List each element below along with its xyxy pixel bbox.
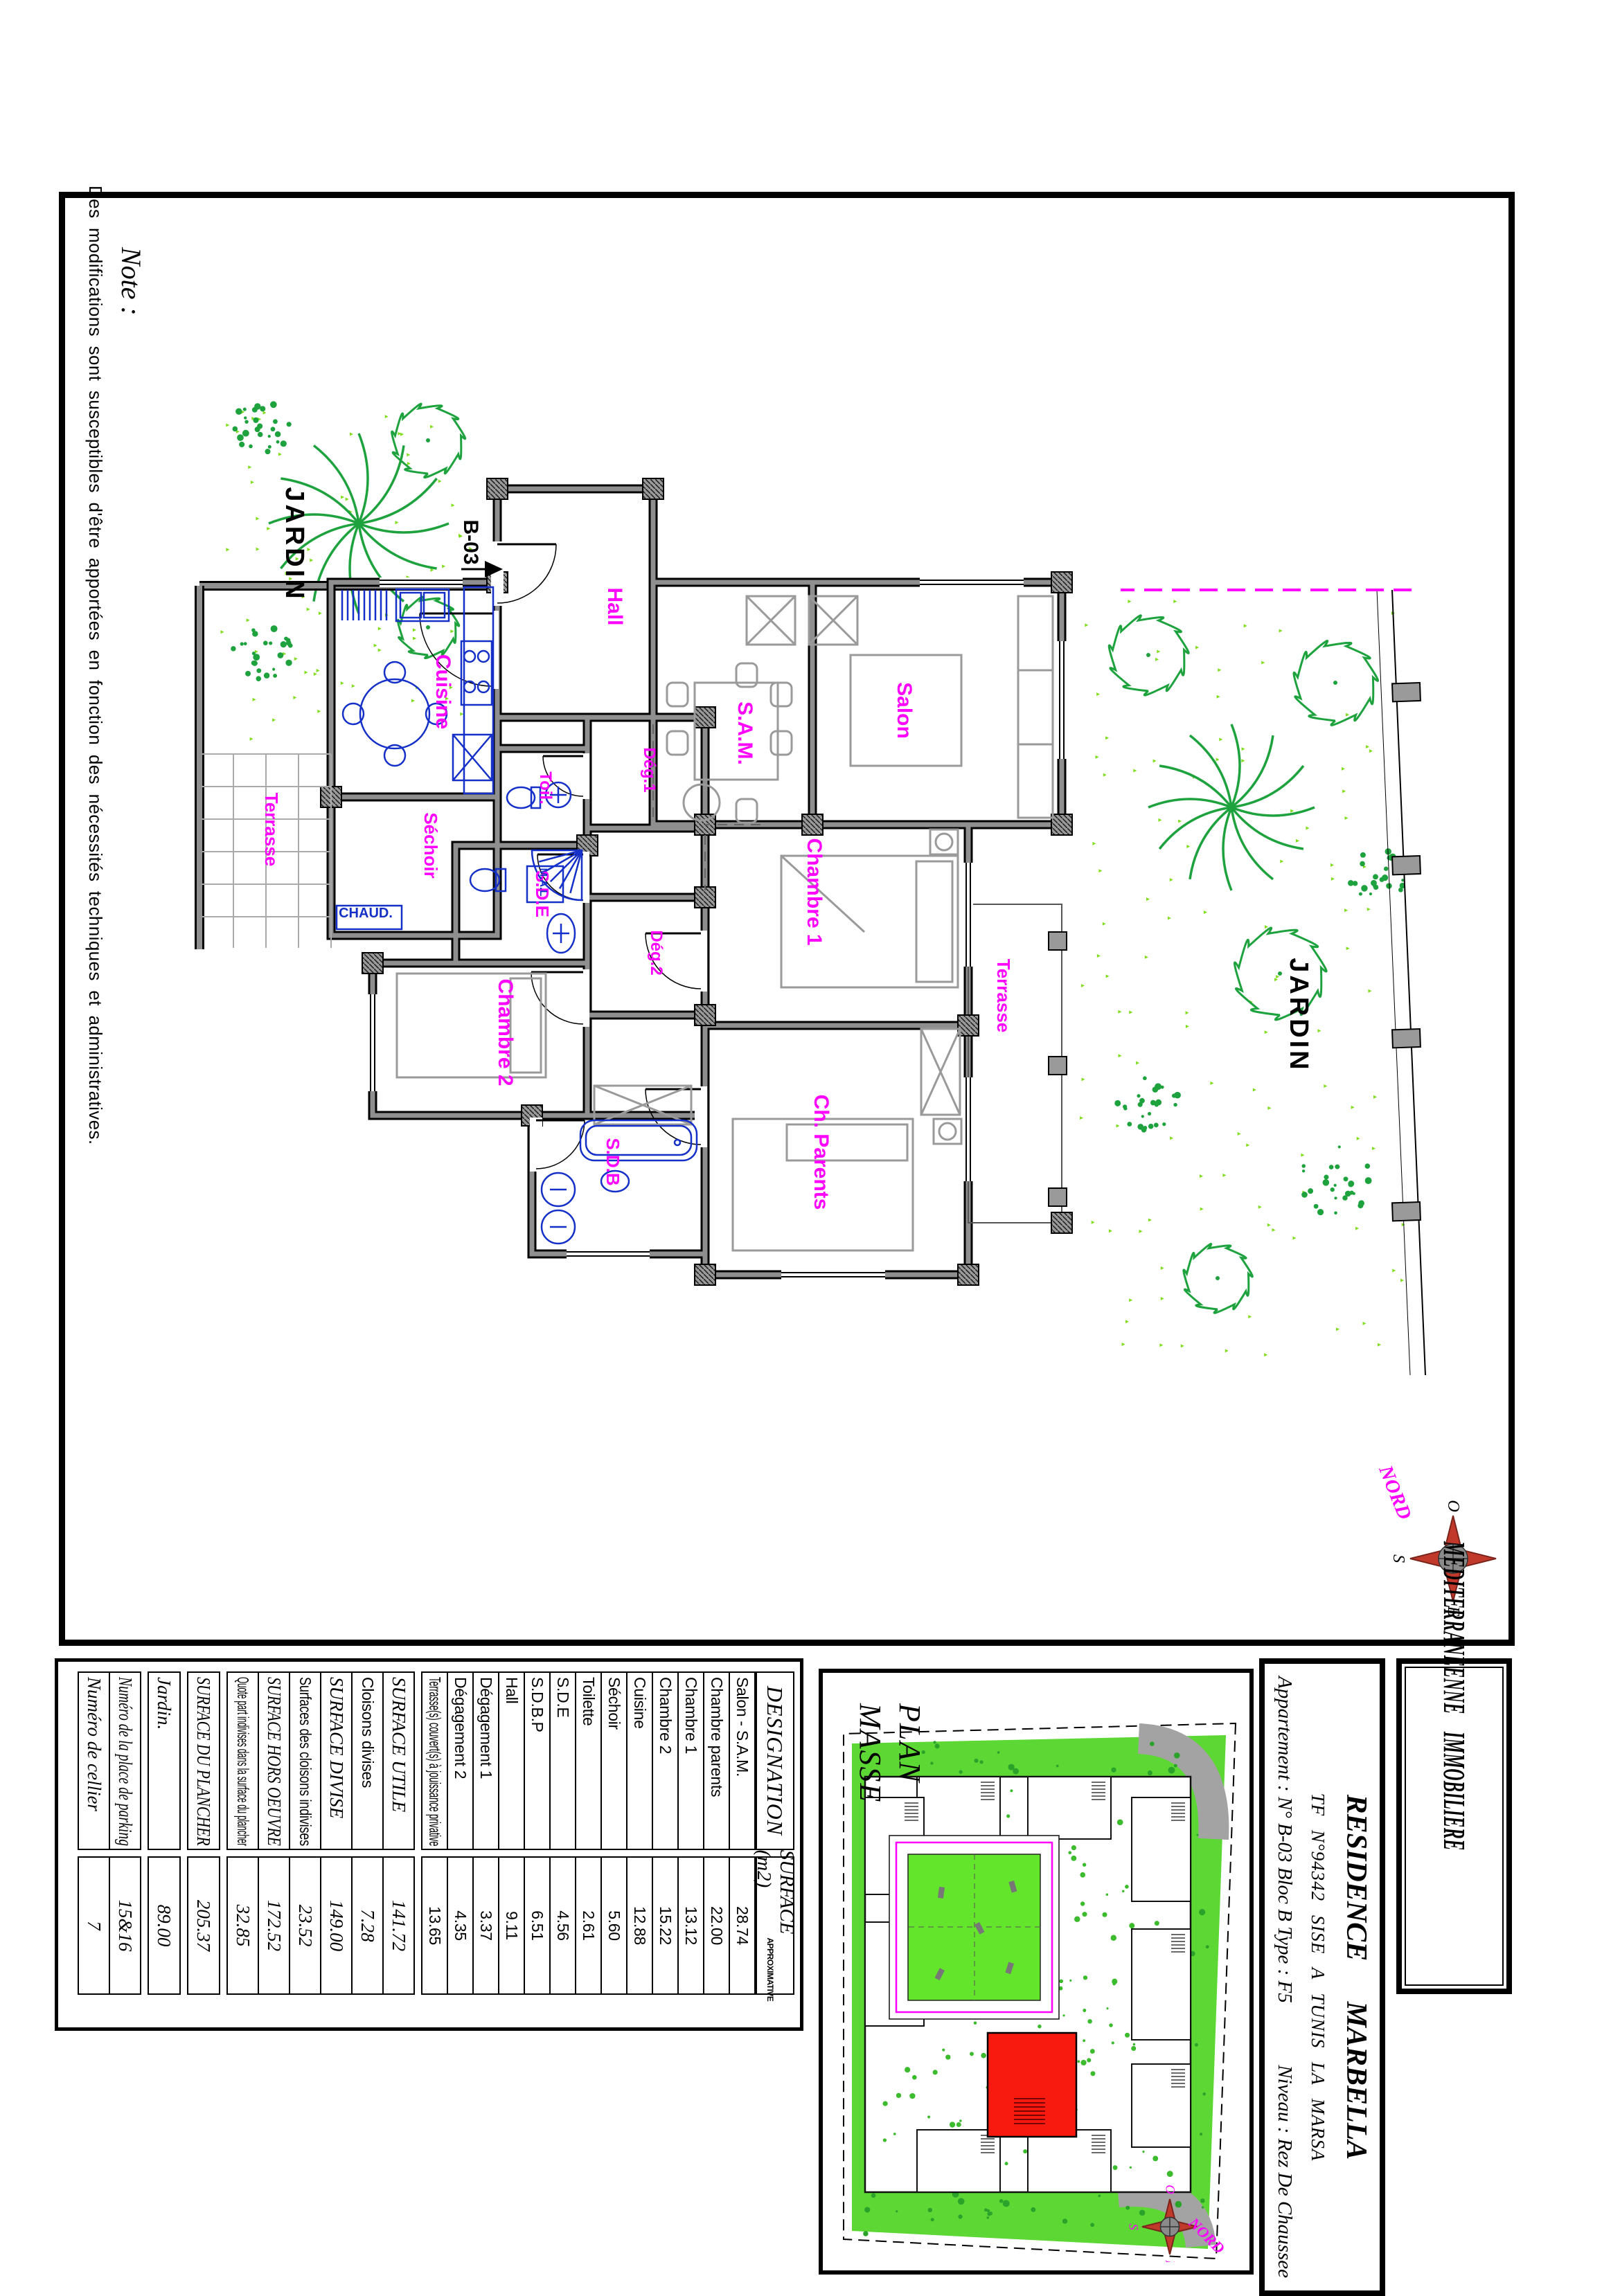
compass-east-letter: E	[1162, 2259, 1177, 2262]
company-name: MEDITERRANEENNE IMMOBILIERE	[1436, 1541, 1472, 1851]
surface-label-cell: Séchoir	[602, 1673, 627, 1849]
project-apartment-line: Appartement : N° B-03 Bloc B Type : F5 N…	[1273, 1676, 1296, 2278]
surface-row-label: Surfaces des cloisons indivises	[296, 1677, 314, 1846]
surface-value-cell: 141.72	[384, 1858, 413, 1993]
surface-value-cell: 172.52	[259, 1858, 290, 1993]
compass-south-letter: S	[1125, 2223, 1140, 2230]
surface-row-value: 5.60	[605, 1910, 623, 1941]
surface-row-value: 141.72	[388, 1900, 409, 1951]
surface-label-cell: Numéro de cellier	[79, 1673, 110, 1849]
surface-label-cell: Chambre 1	[679, 1673, 704, 1849]
title-block-inner: MEDITERRANEENNE IMMOBILIERE	[1405, 1667, 1504, 1986]
surface-label-cell: Chambre 2	[653, 1673, 679, 1849]
surface-label-cell: SURFACE UTILE	[384, 1673, 413, 1849]
surface-table-group: SURFACE UTILECloisons divisesSURFACE DIV…	[226, 1671, 415, 2018]
surface-label-cell: Toilette	[576, 1673, 602, 1849]
surface-row-value: 15&16	[114, 1899, 136, 1951]
surface-value-cell: 89.00	[149, 1858, 179, 1993]
compass-south-letter: S	[1389, 1554, 1408, 1563]
surface-row-label: SURFACE HORS OEUVRE	[263, 1677, 285, 1846]
plan-masse-title: PLAN MASSE	[851, 1703, 929, 1803]
room-label-deg2: Dég.2	[647, 930, 666, 975]
surface-label-cell: S.D.B.P	[525, 1673, 551, 1849]
surface-row-value: 7.28	[357, 1909, 378, 1941]
surface-value-cell: 15.22	[653, 1858, 679, 1993]
surface-row-value: 22.00	[707, 1906, 726, 1945]
room-label-chambre2: Chambre 2	[494, 978, 517, 1086]
surface-table-groups: Salon - S.A.M.Chambre parentsChambre 1Ch…	[78, 1671, 756, 2018]
compass-north-label: NORD	[1374, 1462, 1415, 1523]
plan-masse-title-line2: MASSE	[851, 1703, 890, 1803]
surface-value-cell: 149.00	[321, 1858, 353, 1993]
project-tf-line: TF N°94342 SISE A TUNIS LA MARSA	[1307, 1676, 1328, 2278]
surface-value-cell: 32.85	[228, 1858, 259, 1993]
surface-label-cell: SURFACE DIVISE	[321, 1673, 353, 1849]
surface-value-cell: 2.61	[576, 1858, 602, 1993]
compass-west-letter: O	[1162, 2185, 1177, 2194]
floor-plan-drawing: HallSalonS.A.M.CuisineSéchoirToil.Dég.1D…	[65, 198, 1508, 1640]
surface-label-cell: Hall	[499, 1673, 525, 1849]
surface-row-value: 172.52	[263, 1900, 285, 1951]
surface-label-cell: Salon - S.A.M.	[730, 1673, 754, 1849]
water-heater-label: CHAUD.	[339, 906, 393, 921]
room-label-sam: S.A.M.	[733, 701, 756, 765]
surface-row-value: 3.37	[477, 1910, 495, 1941]
project-info-block: RESIDENCE MARBELLA TF N°94342 SISE A TUN…	[1259, 1658, 1385, 2296]
room-label-salon: Salon	[893, 682, 916, 739]
surface-row-label: Numéro de la place de parking	[114, 1677, 136, 1846]
surface-row-label: Toilette	[579, 1677, 598, 1725]
surface-row-value: 32.85	[232, 1905, 253, 1947]
compass-rose-icon: OESNORD	[1374, 1462, 1496, 1617]
level-label: Niveau : Rez De Chaussee	[1273, 2065, 1296, 2278]
compass-west-letter: O	[1444, 1500, 1463, 1512]
surface-value-cell: 28.74	[730, 1858, 754, 1993]
surface-row-label: Séchoir	[605, 1677, 623, 1730]
surface-row-value: 89.00	[154, 1905, 175, 1947]
surface-label-cell: SURFACE HORS OEUVRE	[259, 1673, 290, 1849]
surface-row-label: Salon - S.A.M.	[733, 1677, 751, 1777]
surface-row-label: Chambre parents	[707, 1677, 726, 1797]
surface-row-label: Numéro de cellier	[83, 1677, 105, 1811]
surface-label-cell: Cuisine	[627, 1673, 653, 1849]
surface-row-label: S.D.E	[553, 1677, 572, 1718]
room-label-hall: Hall	[603, 587, 626, 625]
surface-header-cell: SURFACE (m2) APPROXIMATIVE	[756, 1856, 794, 1995]
surface-value-cell: 22.00	[704, 1858, 730, 1993]
surface-label-cell: Cloisons divises	[353, 1673, 384, 1849]
plan-masse-box: OESNORD PLAN MASSE	[819, 1669, 1254, 2275]
highlighted-unit-b03	[988, 2033, 1076, 2137]
surface-label-cell: Dégagement 2	[448, 1673, 474, 1849]
surface-row-value: 7	[83, 1921, 105, 1930]
surface-row-value: 205.37	[193, 1900, 215, 1951]
surface-row-value: 9.11	[502, 1911, 521, 1940]
surface-row-label: Dégagement 1	[477, 1677, 495, 1779]
surface-value-cell: 23.52	[290, 1858, 321, 1993]
surface-value-cell: 15&16	[110, 1858, 140, 1993]
surface-label-cell: Numéro de la place de parking	[110, 1673, 140, 1849]
surface-label-cell: Surfaces des cloisons indivises	[290, 1673, 321, 1849]
surface-row-value: 13.65	[425, 1906, 444, 1945]
surface-value-cell: 13.65	[422, 1858, 448, 1993]
surface-value-cell: 7.28	[353, 1858, 384, 1993]
surface-table-group: Numéro de la place de parkingNuméro de c…	[78, 1671, 141, 2018]
surface-value-cell: 12.88	[627, 1858, 653, 1993]
surface-label-cell: Quote part indivises dans la surface du …	[228, 1673, 259, 1849]
apartment-label: Appartement : N° B-03 Bloc B Type : F5	[1273, 1676, 1296, 2003]
room-label-chparents: Ch. Parents	[810, 1095, 833, 1210]
garden-label-left: JARDIN	[280, 487, 309, 601]
surface-row-label: Quote part indivises dans la surface du …	[233, 1677, 252, 1846]
surface-row-value: 12.88	[630, 1906, 649, 1945]
surface-label-cell: Chambre parents	[704, 1673, 730, 1849]
surface-label-cell: SURFACE DU PLANCHER	[188, 1673, 219, 1849]
surface-label-cell: S.D.E	[551, 1673, 576, 1849]
surface-row-label: Chambre 1	[682, 1677, 700, 1754]
project-name: RESIDENCE MARBELLA	[1339, 1676, 1373, 2278]
surface-row-label: Chambre 2	[656, 1677, 675, 1754]
surface-row-label: Jardin.	[154, 1677, 175, 1730]
room-label-sechoir: Séchoir	[420, 812, 441, 878]
surface-table-group: SURFACE DU PLANCHER205.37	[187, 1671, 220, 2018]
drawing-sheet: Note : Des modifications sont susceptibl…	[0, 0, 1620, 2291]
surface-row-value: 15.22	[656, 1906, 675, 1945]
surface-label-cell: Terrasse(s) couvert(s) à jouissance priv…	[422, 1673, 448, 1849]
room-label-deg1: Dég.1	[640, 747, 659, 792]
unit-number-label: B-03	[459, 519, 482, 564]
surface-row-label: S.D.B.P	[528, 1677, 546, 1732]
surface-header-label: SURFACE (m2)	[752, 1850, 798, 1935]
surface-row-value: 6.51	[528, 1910, 546, 1941]
surface-row-label: SURFACE UTILE	[388, 1677, 409, 1812]
surface-value-cell: 4.56	[551, 1858, 576, 1993]
page: { "note": { "title": "Note :", "body": "…	[0, 0, 1620, 2291]
room-label-chambre1: Chambre 1	[803, 838, 826, 945]
floor-plan-frame: HallSalonS.A.M.CuisineSéchoirToil.Dég.1D…	[59, 192, 1515, 1646]
walls	[199, 489, 1062, 1275]
surface-header-sub-label: APPROXIMATIVE	[765, 1937, 775, 2001]
surface-label-cell: Dégagement 1	[474, 1673, 499, 1849]
room-label-cuisine: Cuisine	[431, 654, 454, 729]
surface-value-cell: 205.37	[188, 1858, 219, 1993]
designation-header-label: DESIGNATION	[763, 1686, 788, 1836]
surface-row-value: 4.35	[451, 1910, 470, 1941]
surface-row-value: 28.74	[733, 1906, 751, 1945]
title-block: MEDITERRANEENNE IMMOBILIERE	[1396, 1658, 1512, 1994]
surface-row-value: 2.61	[579, 1910, 598, 1941]
surface-row-value: 149.00	[326, 1900, 347, 1951]
designation-header-cell: DESIGNATION	[756, 1671, 794, 1850]
room-label-sdb: S.D.B	[603, 1138, 623, 1185]
surface-row-label: Hall	[502, 1677, 521, 1703]
surface-row-label: SURFACE DIVISE	[326, 1677, 347, 1818]
surface-value-cell: 7	[79, 1858, 110, 1993]
surface-value-cell: 13.12	[679, 1858, 704, 1993]
surface-value-cell: 9.11	[499, 1858, 525, 1993]
surface-row-value: 13.12	[682, 1906, 700, 1945]
garden-label-top: JARDIN	[1284, 958, 1313, 1072]
surface-value-cell: 6.51	[525, 1858, 551, 1993]
plan-masse-title-line1: PLAN	[890, 1703, 929, 1803]
surface-row-label: SURFACE DU PLANCHER	[193, 1677, 215, 1846]
surface-table-group: Salon - S.A.M.Chambre parentsChambre 1Ch…	[421, 1671, 756, 2018]
surface-value-cell: 5.60	[602, 1858, 627, 1993]
surface-row-label: Dégagement 2	[451, 1677, 470, 1779]
room-label-terrasse_top: Terrasse	[993, 959, 1014, 1033]
surface-value-cell: 4.35	[448, 1858, 474, 1993]
surface-label-cell: Jardin.	[149, 1673, 179, 1849]
room-label-toil: Toil.	[536, 771, 555, 805]
surface-row-label: Terrasse(s) couvert(s) à jouissance priv…	[425, 1677, 444, 1846]
surface-table-group: Jardin.89.00	[148, 1671, 181, 2018]
surface-value-cell: 3.37	[474, 1858, 499, 1993]
surface-row-label: Cuisine	[630, 1677, 649, 1729]
surface-table-header: DESIGNATION SURFACE (m2) APPROXIMATIVE	[756, 1671, 794, 2018]
surface-row-label: Cloisons divises	[358, 1677, 377, 1788]
washing-machine-label: M.A.L	[537, 868, 549, 897]
room-label-terrasse_grid: Terrasse	[261, 793, 282, 867]
surface-row-value: 23.52	[294, 1905, 316, 1947]
surface-table: DESIGNATION SURFACE (m2) APPROXIMATIVE S…	[55, 1658, 803, 2031]
surface-row-value: 4.56	[553, 1910, 572, 1941]
